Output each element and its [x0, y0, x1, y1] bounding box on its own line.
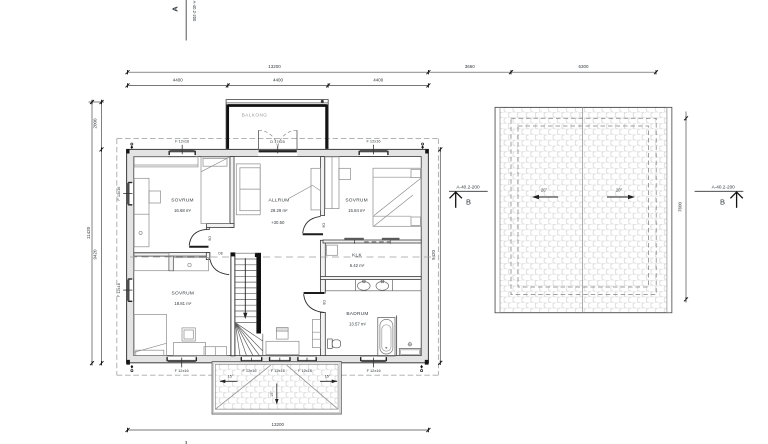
svg-text:4400: 4400 [173, 77, 184, 82]
svg-text:ALLRUM: ALLRUM [269, 197, 290, 203]
svg-text:15°: 15° [228, 375, 234, 379]
svg-text:D8: D8 [321, 223, 325, 227]
svg-text:A-40.2-200: A-40.2-200 [712, 185, 736, 190]
svg-text:7600: 7600 [678, 201, 683, 212]
svg-text:15°: 15° [325, 375, 331, 379]
svg-text:3660: 3660 [465, 64, 476, 69]
svg-text:9420: 9420 [93, 249, 98, 260]
svg-text:SOVRUM: SOVRUM [172, 290, 195, 296]
svg-text:F 12x16: F 12x16 [242, 368, 256, 373]
svg-text:SOVRUM: SOVRUM [345, 197, 368, 203]
svg-text:15.84 m²: 15.84 m² [348, 208, 366, 213]
svg-text:F 12x16: F 12x16 [367, 368, 381, 373]
svg-text:F 12x16: F 12x16 [116, 283, 121, 297]
svg-text:20°: 20° [541, 188, 548, 193]
svg-text:4400: 4400 [373, 77, 384, 82]
svg-text:29.29 m²: 29.29 m² [271, 208, 289, 213]
svg-text:D8: D8 [208, 236, 212, 240]
svg-text:F 12x16: F 12x16 [271, 368, 285, 373]
svg-text:2000: 2000 [93, 118, 98, 129]
svg-text:6.42 m²: 6.42 m² [350, 263, 365, 268]
svg-text:18.81 m²: 18.81 m² [174, 301, 192, 306]
svg-text:11420: 11420 [86, 226, 91, 239]
svg-text:BALKONG: BALKONG [242, 113, 268, 118]
svg-text:9420: 9420 [431, 249, 436, 260]
svg-text:15°: 15° [270, 391, 274, 397]
svg-text:F 12x16: F 12x16 [298, 368, 312, 373]
svg-text:B: B [466, 198, 471, 207]
svg-text:+30.50: +30.50 [271, 220, 285, 225]
svg-text:20°: 20° [616, 188, 623, 193]
svg-text:F 12x16: F 12x16 [175, 139, 189, 144]
svg-text:F 12x16: F 12x16 [366, 139, 380, 144]
svg-text:A-40.2-200: A-40.2-200 [192, 1, 197, 22]
svg-text:D8: D8 [322, 300, 326, 304]
svg-text:BADRUM: BADRUM [346, 311, 368, 317]
svg-text:A-40.2-200: A-40.2-200 [456, 185, 480, 190]
svg-text:4400: 4400 [273, 77, 284, 82]
svg-text:16.68 m²: 16.68 m² [174, 208, 192, 213]
svg-text:13200: 13200 [268, 64, 281, 69]
svg-text:D8: D8 [218, 252, 222, 256]
svg-text:KLK: KLK [352, 252, 362, 258]
svg-text:A: A [171, 6, 180, 12]
svg-text:6300: 6300 [578, 64, 589, 69]
svg-text:F 12x16: F 12x16 [175, 368, 189, 373]
svg-text:SOVRUM: SOVRUM [171, 197, 194, 203]
svg-text:D 17x25: D 17x25 [270, 139, 285, 144]
svg-text:F 13x16: F 13x16 [116, 187, 121, 201]
svg-text:13.57 m²: 13.57 m² [349, 322, 367, 327]
svg-text:13200: 13200 [271, 422, 284, 427]
svg-text:B: B [720, 198, 725, 207]
